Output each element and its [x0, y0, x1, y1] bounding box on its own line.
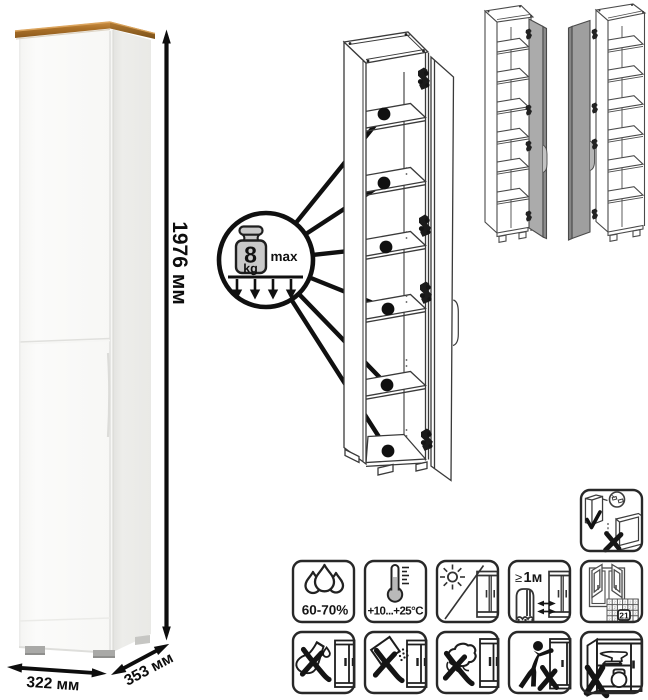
svg-text:1976 мм: 1976 мм: [168, 221, 191, 305]
svg-text:21: 21: [619, 611, 629, 621]
svg-text:+10...+25°C: +10...+25°C: [368, 606, 424, 618]
svg-text:kg: kg: [243, 262, 258, 276]
svg-text:max: max: [270, 249, 298, 264]
svg-text:322 мм: 322 мм: [26, 674, 80, 695]
svg-text:≥: ≥: [515, 570, 522, 585]
svg-text:60-70%: 60-70%: [302, 603, 349, 618]
svg-text:1м: 1м: [524, 570, 543, 586]
